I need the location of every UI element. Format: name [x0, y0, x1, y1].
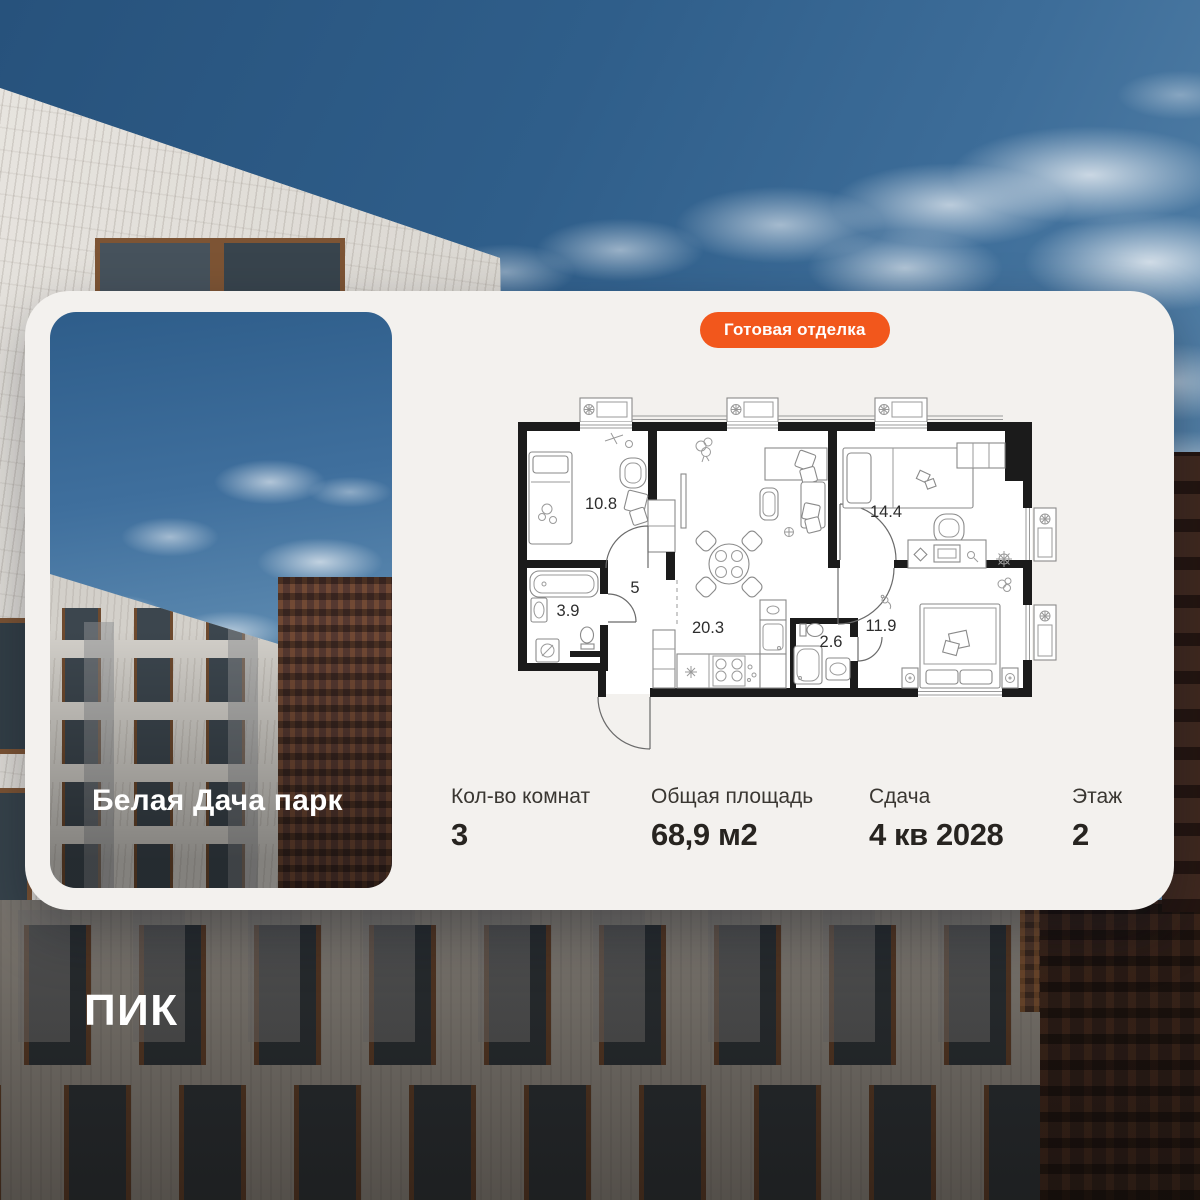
stat-label: Сдача — [869, 785, 1003, 809]
stat-total-area: Общая площадь 68,9 м2 — [651, 785, 813, 853]
stat-value: 3 — [451, 817, 590, 853]
floorplan: 10.8 5 3.9 20.3 2.6 14.4 11.9 — [498, 392, 1058, 772]
room-area-label: 3.9 — [557, 602, 580, 620]
stat-value: 4 кв 2028 — [869, 817, 1003, 853]
pik-logo: ПИК — [84, 986, 179, 1036]
room-area-label: 10.8 — [585, 495, 617, 513]
listing-card[interactable]: Белая Дача парк Готовая отделка — [25, 291, 1174, 910]
balcony-icon — [727, 398, 778, 422]
stat-label: Этаж — [1072, 785, 1122, 809]
listing-screenshot: ПИК Белая Дача парк Готовая отделка — [0, 0, 1200, 1200]
finish-badge-label: Готовая отделка — [724, 320, 866, 340]
balcony-icon — [1034, 605, 1056, 660]
stat-floor: Этаж 2 — [1072, 785, 1122, 853]
stat-value: 2 — [1072, 817, 1122, 853]
stat-delivery: Сдача 4 кв 2028 — [869, 785, 1003, 853]
project-photo: Белая Дача парк — [50, 312, 392, 888]
project-name: Белая Дача парк — [92, 784, 343, 818]
floorplan-notch — [518, 671, 606, 698]
stat-label: Кол-во комнат — [451, 785, 590, 809]
stat-value: 68,9 м2 — [651, 817, 813, 853]
room-area-label: 5 — [630, 579, 639, 597]
stat-rooms: Кол-во комнат 3 — [451, 785, 590, 853]
room-area-label: 20.3 — [692, 619, 724, 637]
shade-overlay — [0, 900, 1200, 1200]
glazing-lines — [632, 416, 1003, 420]
balcony-icon — [1034, 508, 1056, 561]
room-area-label: 14.4 — [870, 503, 902, 521]
stat-label: Общая площадь — [651, 785, 813, 809]
balcony-icon — [875, 398, 927, 422]
finish-badge: Готовая отделка — [700, 312, 890, 348]
background-buildings-bottom — [0, 900, 1200, 1200]
room-area-label: 2.6 — [820, 633, 843, 651]
room-area-label: 11.9 — [866, 617, 897, 635]
balcony-icon — [580, 398, 632, 422]
